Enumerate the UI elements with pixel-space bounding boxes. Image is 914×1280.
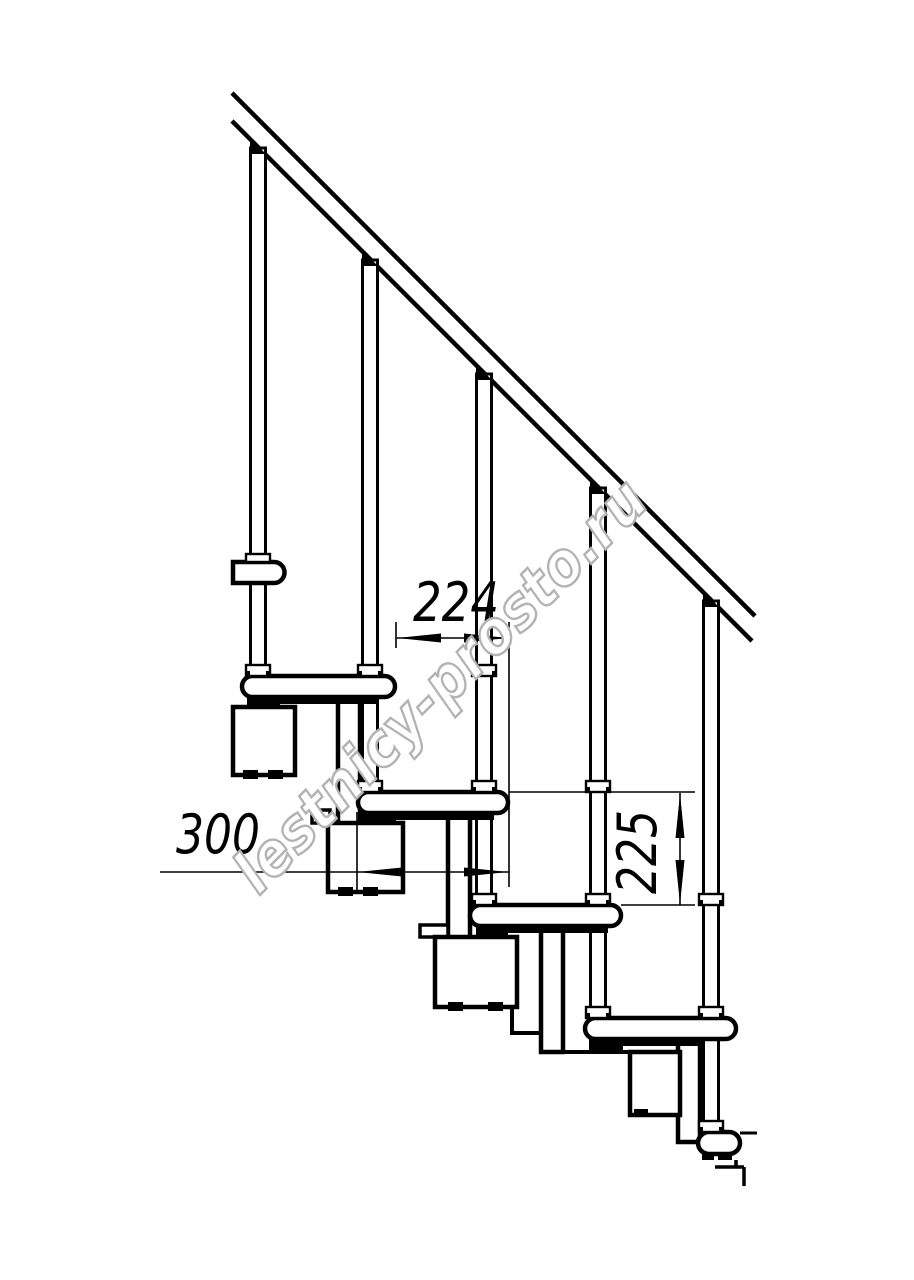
box-foot: [634, 1109, 648, 1117]
baluster-collar: [471, 894, 497, 906]
landing-edge-bracket: [233, 562, 285, 583]
box-foot: [488, 1002, 503, 1011]
spine-box: [630, 1052, 680, 1115]
baluster-collar: [585, 1007, 611, 1019]
spine-box: [233, 707, 295, 775]
baluster-collar: [585, 894, 611, 906]
spine-box: [435, 937, 517, 1007]
baluster: [251, 148, 266, 676]
baluster-collar: [698, 894, 724, 906]
box-foot: [338, 887, 353, 896]
stair-tread: [585, 1018, 736, 1039]
box-foot: [363, 887, 378, 896]
base-bracket: [698, 1132, 740, 1154]
baluster-collar: [357, 665, 383, 677]
baluster: [704, 601, 719, 1132]
box-foot: [243, 770, 258, 779]
baluster-collar: [245, 665, 271, 677]
staircase-drawing-page: 224 300 225 lestnicy-prosto.ru: [0, 0, 914, 1280]
baluster-collar: [698, 1121, 724, 1133]
baluster-collar: [471, 781, 497, 793]
staircase-technical-drawing: 224 300 225 lestnicy-prosto.ru: [0, 0, 914, 1280]
baluster-cap: [246, 554, 270, 562]
stair-tread: [242, 676, 395, 697]
spine-neck: [541, 928, 563, 1052]
stair-tread: [470, 905, 621, 926]
baluster-collar: [698, 1007, 724, 1019]
box-foot: [268, 770, 283, 779]
dimension-label-225: 225: [606, 810, 669, 894]
box-foot: [448, 1002, 463, 1011]
